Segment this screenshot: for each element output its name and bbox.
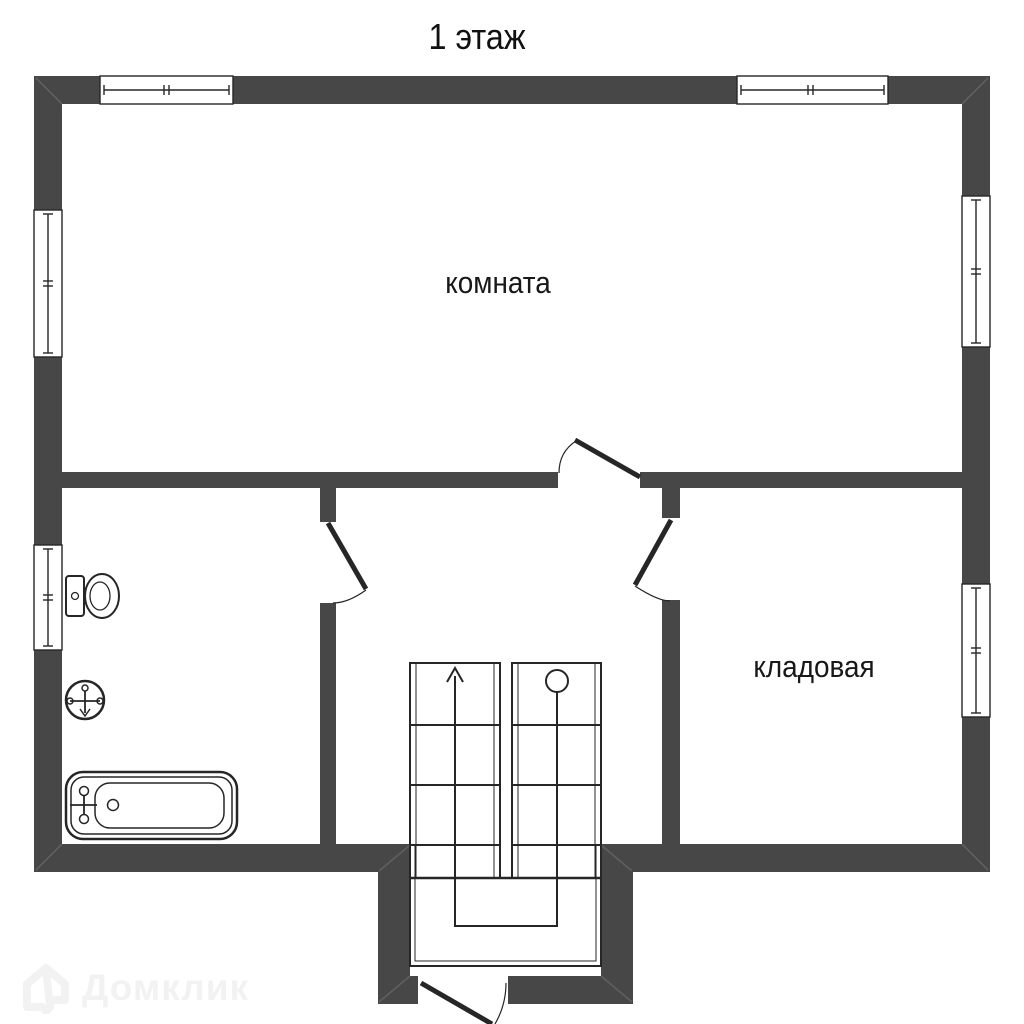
sink-icon — [66, 681, 104, 719]
wall-bottom-left — [34, 844, 408, 872]
watermark: Домклик — [22, 962, 249, 1014]
stair-landing — [410, 845, 601, 966]
wall-divider-left — [62, 472, 558, 488]
staircase — [410, 663, 601, 966]
floor-title: 1 этаж — [428, 16, 525, 58]
windows — [34, 76, 990, 717]
stair-walk-line — [455, 676, 557, 926]
door-entrance — [421, 983, 506, 1024]
room-label-storage: кладовая — [753, 649, 874, 685]
bathtub-icon — [66, 772, 237, 839]
fixtures — [66, 574, 237, 839]
wall-vestibule-bottom-right — [508, 976, 633, 1004]
window-right-upper — [962, 196, 990, 347]
wall-divider-right — [640, 472, 962, 488]
floor-plan-drawing — [0, 0, 1024, 1024]
wall-storage-upper — [662, 488, 680, 518]
toilet-icon — [66, 574, 119, 618]
wall-bathroom-lower — [320, 603, 336, 844]
door-living — [559, 440, 640, 477]
wall-storage-lower — [662, 600, 680, 844]
wall-vestibule-bottom-left — [378, 976, 418, 1004]
floor-plan: 1 этаж комната кладовая Домклик — [0, 0, 1024, 1024]
window-top-right — [737, 76, 888, 104]
wall-bottom-right — [604, 844, 990, 872]
domclick-house-icon — [22, 962, 70, 1014]
window-right-lower — [962, 584, 990, 717]
stairs-start-circle-icon — [546, 670, 568, 692]
window-top-left — [100, 76, 233, 104]
door-bathroom — [328, 523, 366, 603]
door-storage — [635, 520, 671, 601]
wall-left — [34, 76, 62, 872]
window-left-lower — [34, 545, 62, 650]
room-label-living: комната — [445, 265, 551, 301]
watermark-text: Домклик — [82, 967, 249, 1009]
window-left-upper — [34, 210, 62, 357]
wall-bathroom-upper — [320, 488, 336, 522]
